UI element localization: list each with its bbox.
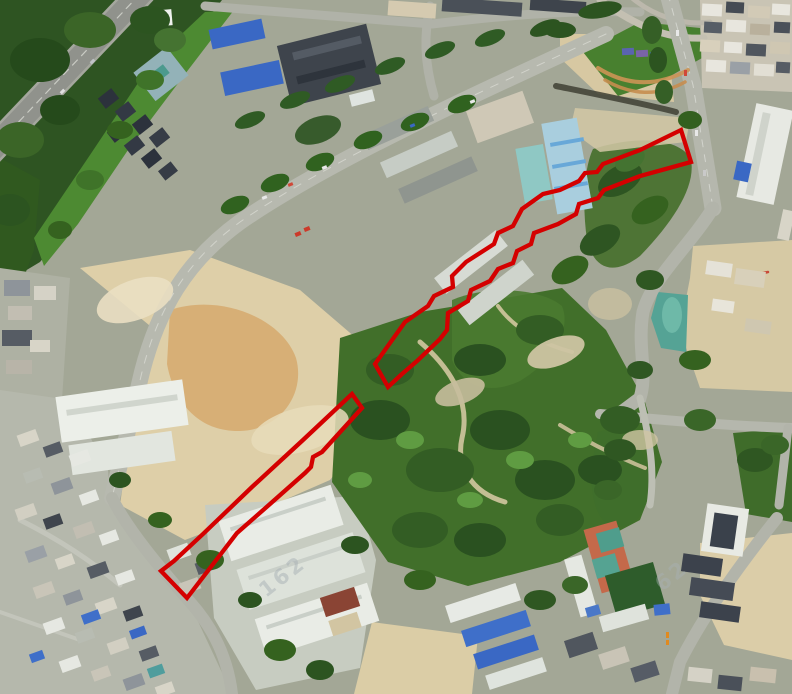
satellite-imagery: 16262 — [0, 0, 792, 694]
satellite-map-view: 16262 — [0, 0, 792, 694]
